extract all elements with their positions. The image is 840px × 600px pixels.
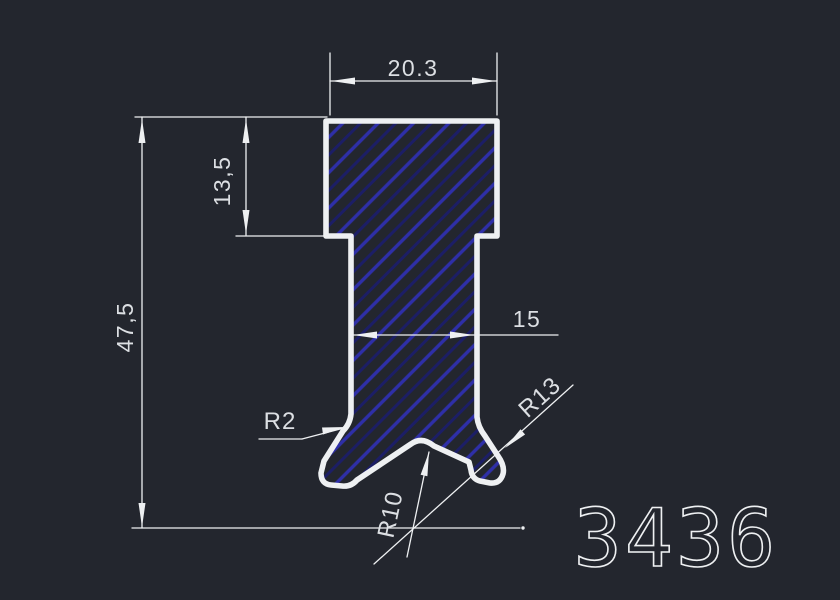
upper-height-label: 13,5: [209, 156, 235, 207]
total-height-label: 47,5: [112, 302, 138, 353]
part-number: 3436: [574, 492, 779, 585]
stem-width-label: 15: [513, 306, 542, 332]
cad-drawing: 20.3 13,5 47,5 15 R2 R13 R10 3436: [0, 0, 840, 600]
r2-label: R2: [264, 408, 297, 435]
profile-outline: [321, 121, 503, 486]
part-number-group: 3436: [574, 492, 779, 585]
top-width-label: 20.3: [388, 55, 439, 81]
cad-drawing-canvas: 20.3 13,5 47,5 15 R2 R13 R10 3436: [0, 0, 840, 600]
baseline-end-tick: [521, 526, 524, 529]
